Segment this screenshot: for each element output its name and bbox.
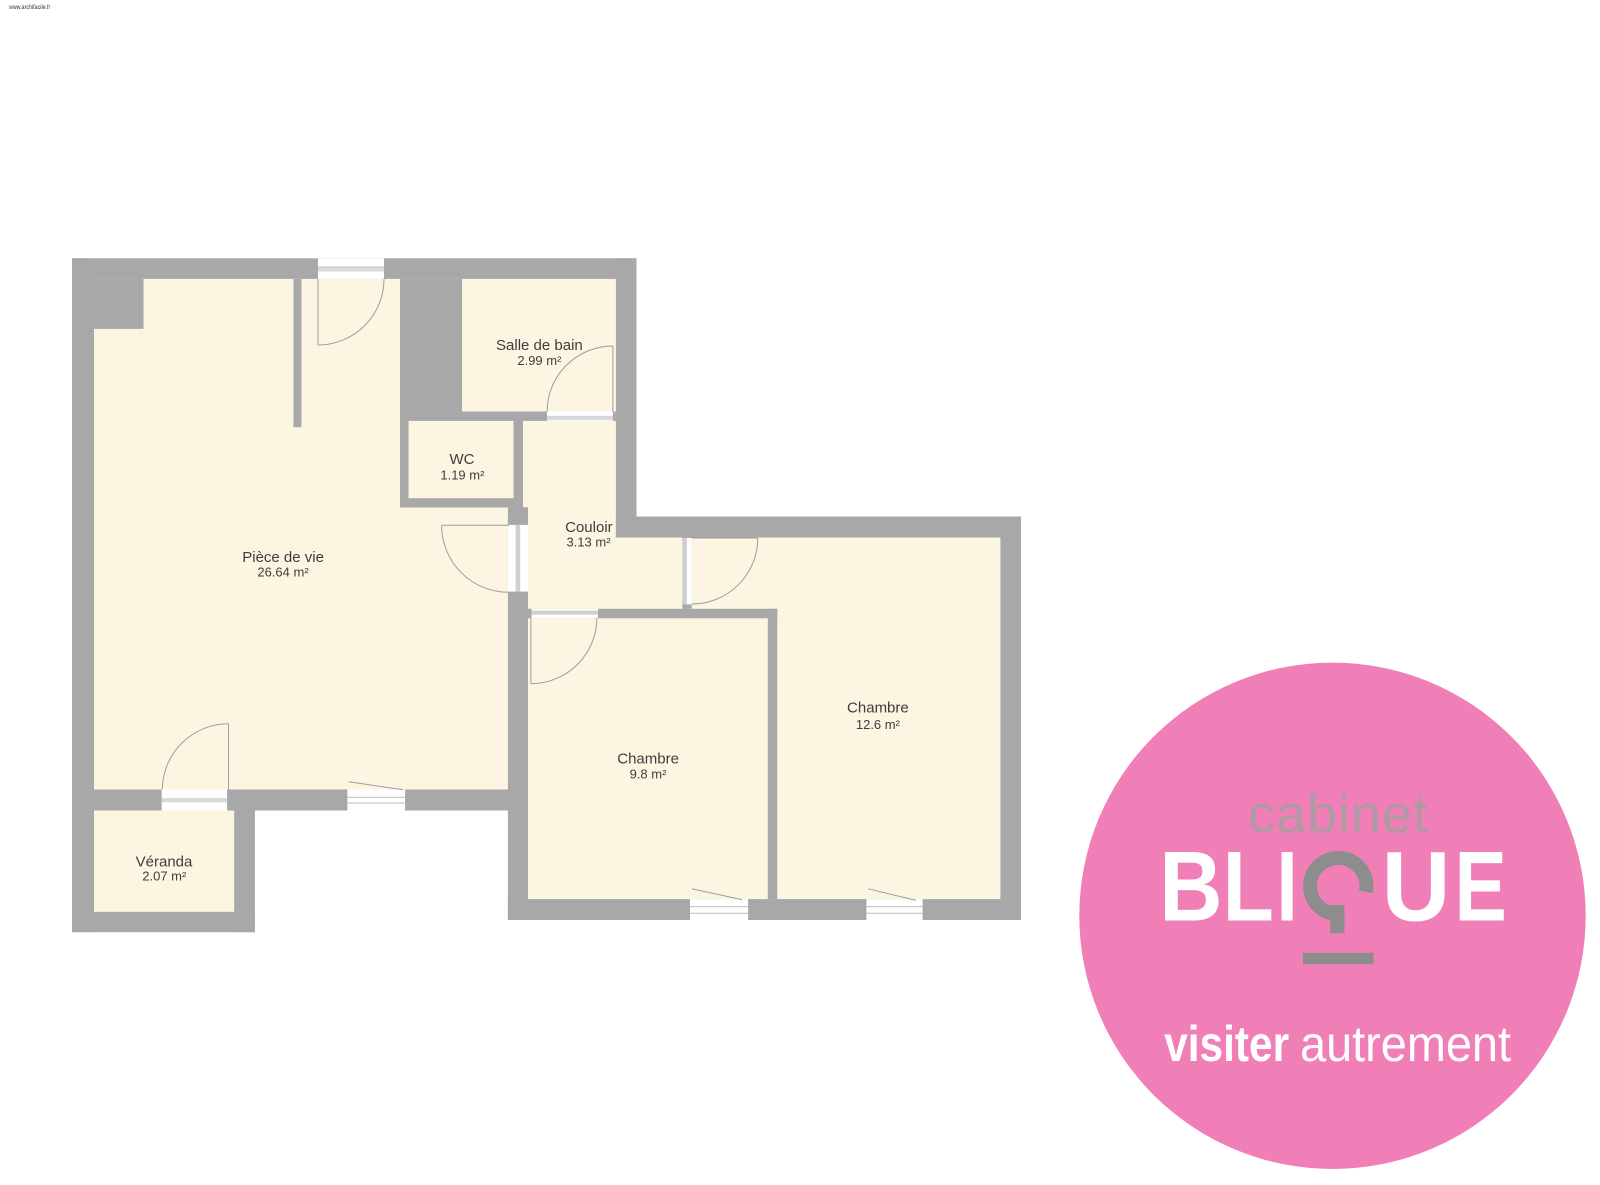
svg-text:E: E — [1455, 831, 1507, 942]
svg-text:2.99 m²: 2.99 m² — [517, 353, 562, 368]
svg-text:autrement: autrement — [1300, 1016, 1511, 1072]
svg-text:9.8 m²: 9.8 m² — [630, 766, 668, 781]
svg-text:B: B — [1159, 831, 1222, 942]
svg-text:Chambre: Chambre — [617, 751, 679, 768]
svg-text:www.archifacile.fr: www.archifacile.fr — [8, 4, 51, 11]
svg-text:L: L — [1223, 831, 1274, 942]
svg-text:Couloir: Couloir — [565, 519, 613, 536]
svg-text:1.19 m²: 1.19 m² — [440, 467, 485, 482]
svg-text:2.07 m²: 2.07 m² — [142, 868, 187, 883]
svg-text:Chambre: Chambre — [847, 700, 909, 717]
svg-text:Pièce de vie: Pièce de vie — [242, 549, 324, 566]
svg-text:visiter: visiter — [1164, 1016, 1289, 1072]
svg-text:26.64 m²: 26.64 m² — [257, 565, 309, 580]
svg-text:I: I — [1277, 831, 1298, 942]
svg-text:WC: WC — [450, 451, 475, 468]
svg-text:Salle de bain: Salle de bain — [496, 337, 583, 354]
svg-text:3.13 m²: 3.13 m² — [566, 535, 611, 550]
svg-text:U: U — [1382, 831, 1451, 942]
svg-text:12.6 m²: 12.6 m² — [856, 717, 901, 732]
